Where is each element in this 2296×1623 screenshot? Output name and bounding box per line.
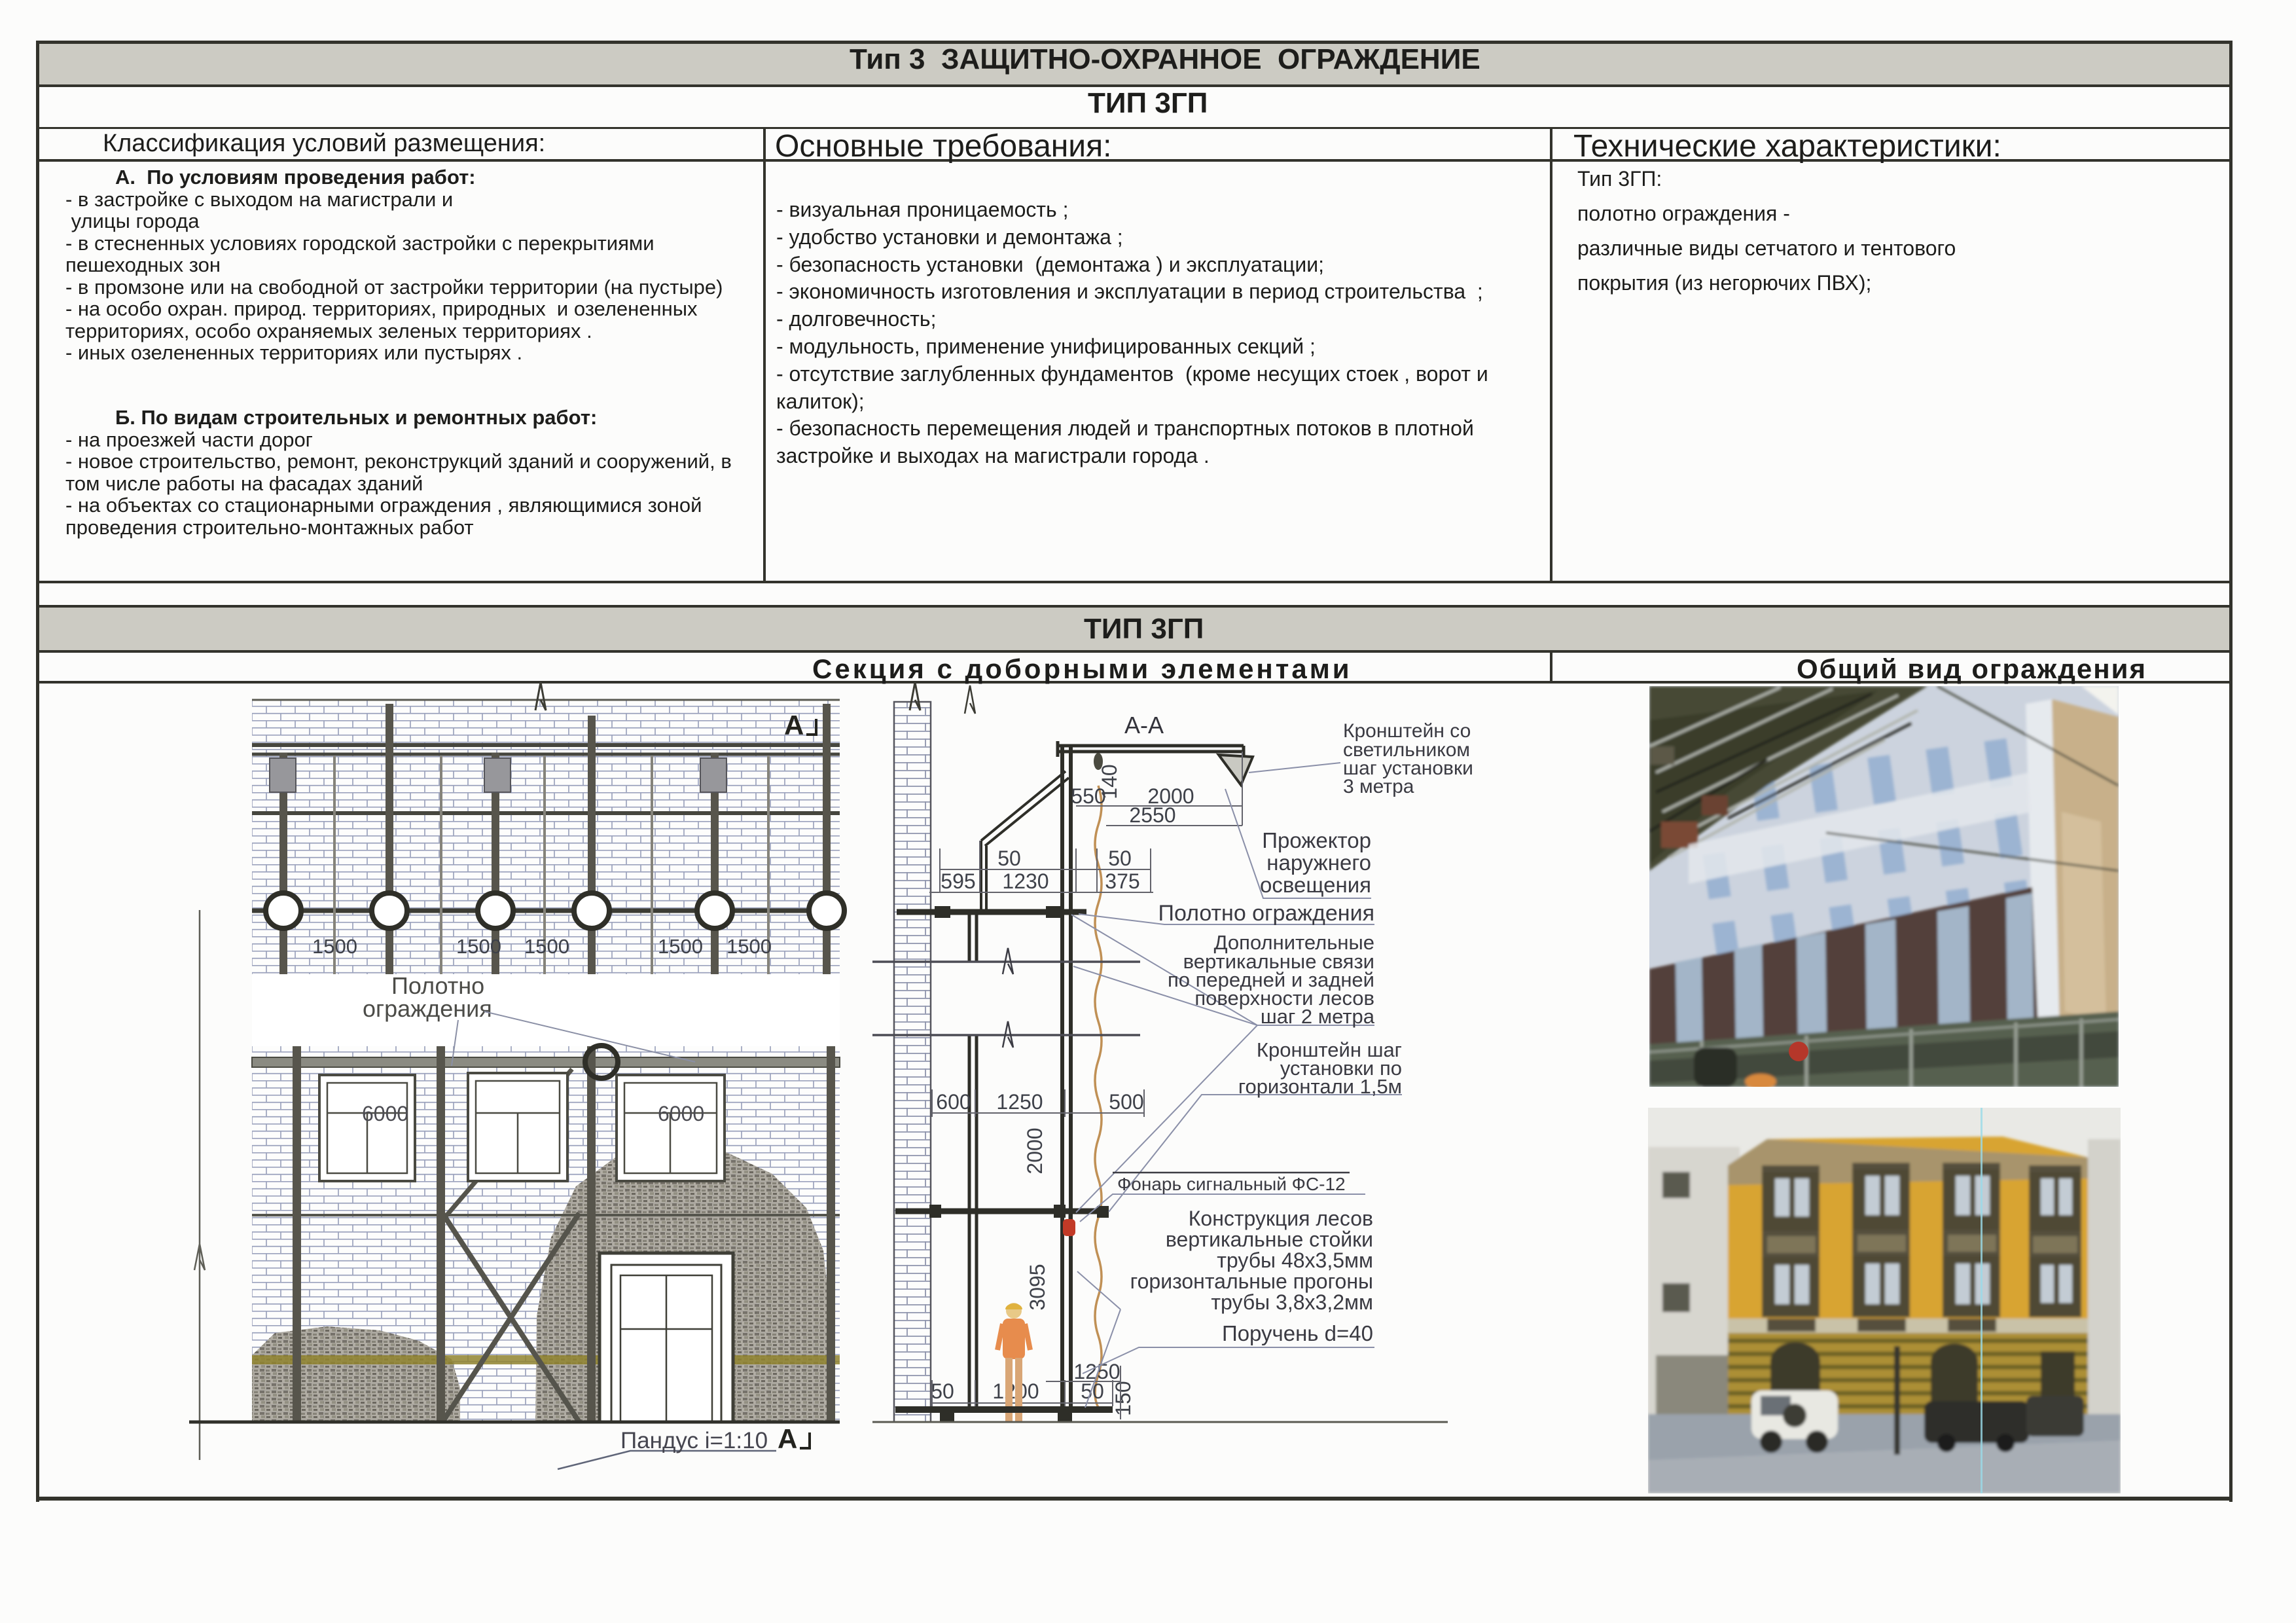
svg-text:наружнего: наружнего [1266, 850, 1371, 875]
svg-text:трубы 48х3,5мм: трубы 48х3,5мм [1217, 1249, 1373, 1272]
svg-text:А: А [784, 710, 804, 740]
svg-text:500: 500 [1109, 1090, 1143, 1114]
svg-text:горизонтальные прогоны: горизонтальные прогоны [1130, 1269, 1373, 1293]
svg-text:50: 50 [1108, 847, 1132, 870]
svg-text:Пандус i=1:10: Пандус i=1:10 [620, 1428, 768, 1453]
svg-text:Фонарь сигнальный ФС-12: Фонарь сигнальный ФС-12 [1117, 1174, 1346, 1194]
svg-text:50: 50 [997, 847, 1021, 870]
svg-text:6000: 6000 [362, 1102, 408, 1125]
svg-text:1500: 1500 [524, 935, 569, 958]
svg-text:375: 375 [1105, 869, 1139, 893]
svg-text:50: 50 [931, 1379, 954, 1403]
svg-text:3095: 3095 [1026, 1264, 1049, 1310]
svg-text:вертикальные стойки: вертикальные стойки [1166, 1228, 1373, 1251]
svg-text:1500: 1500 [658, 935, 703, 958]
svg-text:2000: 2000 [1023, 1127, 1047, 1174]
svg-text:2550: 2550 [1129, 803, 1175, 827]
svg-text:горизонтали 1,5м: горизонтали 1,5м [1238, 1075, 1402, 1098]
svg-text:шаг 2 метра: шаг 2 метра [1261, 1005, 1375, 1028]
svg-text:50: 50 [1081, 1379, 1104, 1403]
svg-text:1500: 1500 [456, 935, 501, 958]
svg-text:1230: 1230 [1002, 869, 1049, 893]
svg-text:595: 595 [941, 869, 975, 893]
svg-text:Конструкция лесов: Конструкция лесов [1189, 1207, 1373, 1230]
svg-text:А-А: А-А [1124, 712, 1164, 739]
svg-text:1500: 1500 [312, 935, 357, 958]
svg-text:3 метра: 3 метра [1343, 776, 1414, 797]
svg-text:1250: 1250 [996, 1090, 1043, 1114]
svg-text:140: 140 [1098, 764, 1121, 799]
svg-text:6000: 6000 [658, 1102, 704, 1125]
svg-text:Прожектор: Прожектор [1262, 828, 1371, 852]
svg-text:освещения: освещения [1260, 873, 1371, 897]
svg-text:трубы 3,8х3,2мм: трубы 3,8х3,2мм [1211, 1290, 1373, 1314]
svg-text:Полотно ограждения: Полотно ограждения [1158, 901, 1375, 926]
svg-text:150: 150 [1111, 1381, 1135, 1415]
svg-text:600: 600 [936, 1090, 971, 1114]
svg-text:Поручень d=40: Поручень d=40 [1222, 1321, 1373, 1345]
svg-text:1500: 1500 [726, 935, 772, 958]
svg-text:А: А [778, 1423, 797, 1454]
svg-text:ограждения: ограждения [363, 995, 492, 1022]
